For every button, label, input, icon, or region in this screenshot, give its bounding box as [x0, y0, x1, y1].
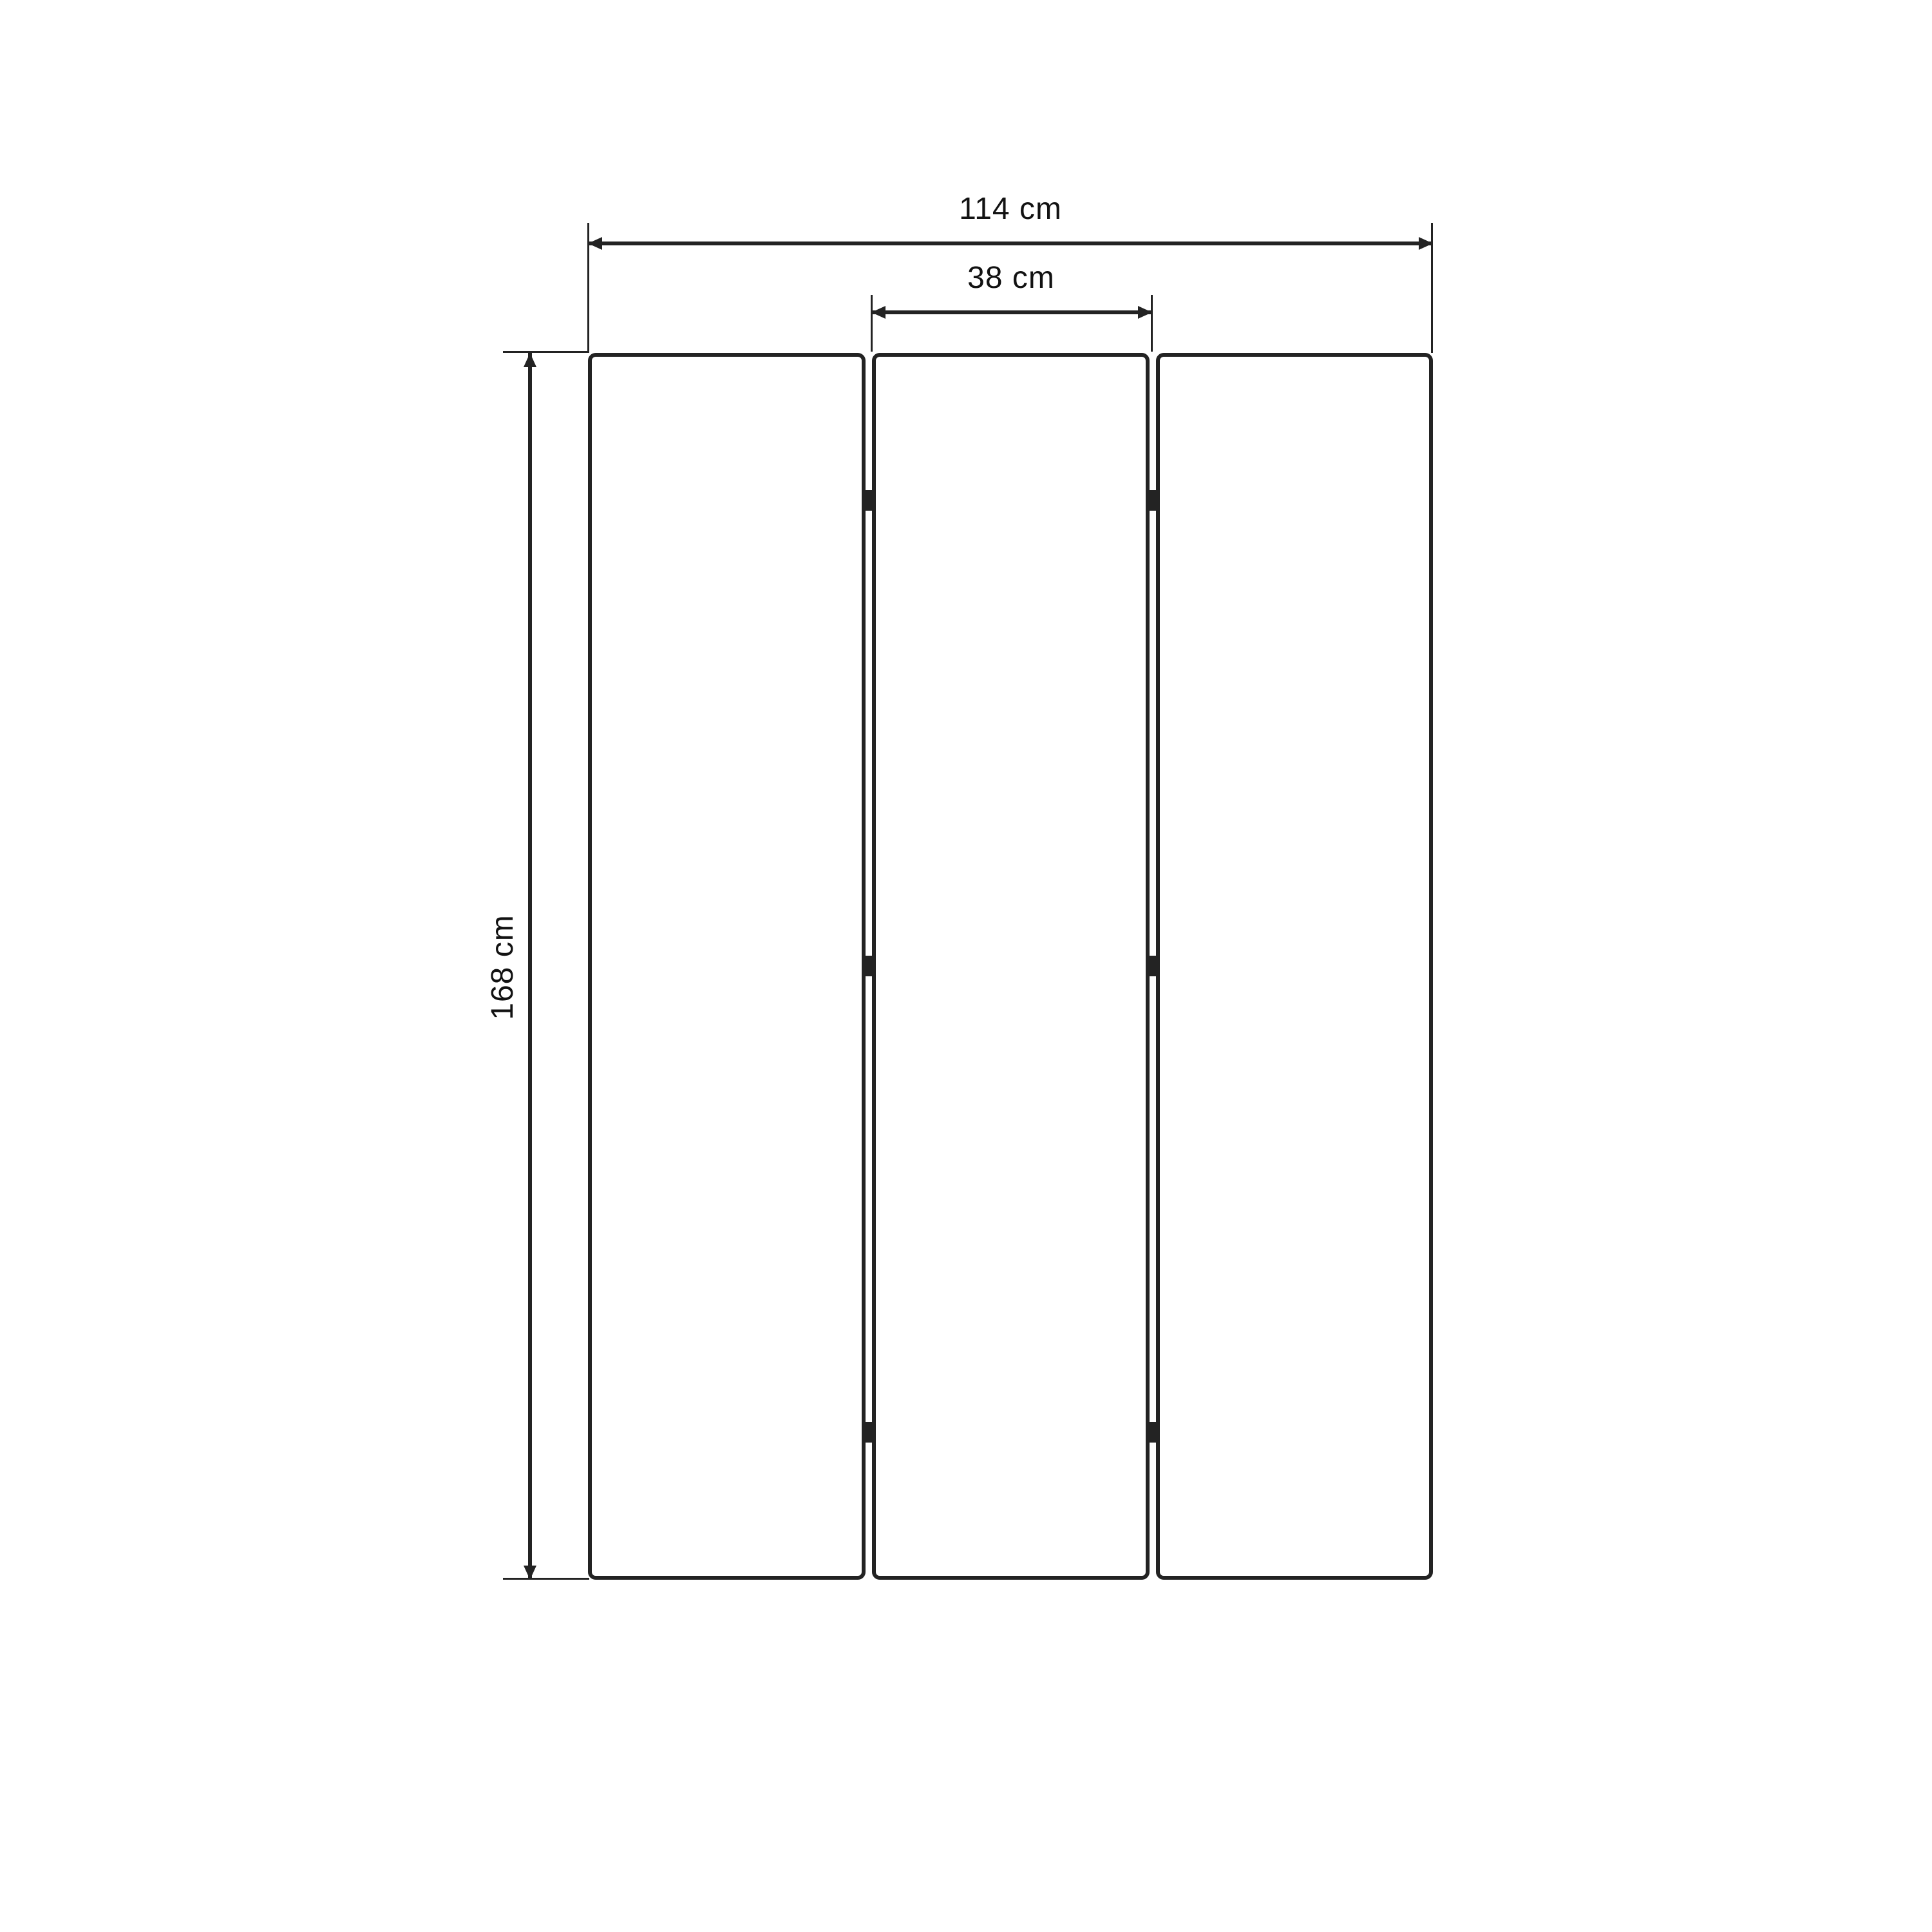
- hinge-icon: [864, 956, 873, 976]
- extension-line: [871, 295, 873, 352]
- hinge-icon: [1148, 490, 1157, 511]
- total-width-dimension-line: [588, 241, 1433, 245]
- extension-line: [1151, 295, 1153, 352]
- panel-left: [588, 353, 866, 1580]
- hinge-icon: [864, 1422, 873, 1443]
- height-label: 168 cm: [486, 871, 520, 1064]
- arrowhead-left-icon: [588, 237, 602, 250]
- arrowhead-up-icon: [524, 353, 536, 367]
- height-dimension-line: [528, 353, 532, 1580]
- hinge-icon: [1148, 956, 1157, 976]
- dimension-drawing: 114 cm 38 cm 168 cm: [0, 0, 1932, 1932]
- extension-line: [587, 223, 589, 353]
- hinge-icon: [1148, 1422, 1157, 1443]
- panel-width-dimension-line: [871, 310, 1152, 314]
- panel-right: [1156, 353, 1433, 1580]
- extension-line: [503, 1578, 589, 1580]
- hinge-icon: [864, 490, 873, 511]
- total-width-label: 114 cm: [882, 193, 1139, 226]
- arrowhead-right-icon: [1138, 306, 1152, 319]
- panel-width-label: 38 cm: [882, 261, 1140, 295]
- arrowhead-left-icon: [871, 306, 885, 319]
- extension-line: [1431, 223, 1433, 353]
- panel-middle: [872, 353, 1150, 1580]
- extension-line: [503, 351, 589, 353]
